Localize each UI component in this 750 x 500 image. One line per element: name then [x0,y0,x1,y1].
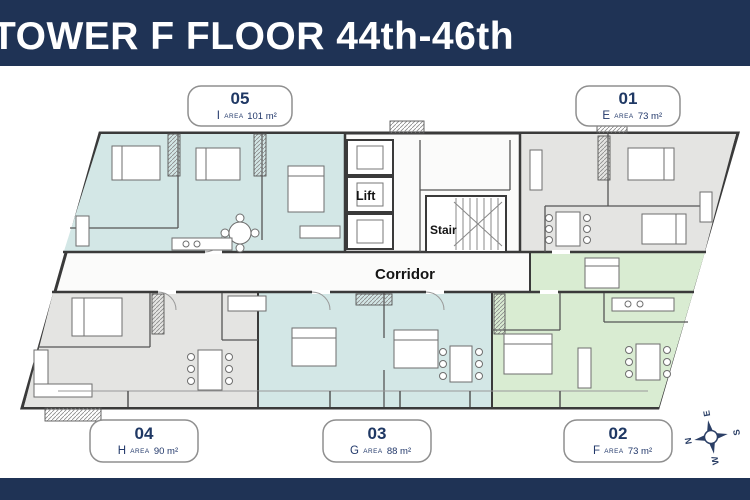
sofa [578,348,591,388]
footer-bar [0,478,750,500]
floor-plan-svg: TOWER F FLOOR 44th-46th [0,0,750,500]
unit-letter: I [217,110,220,122]
compass-rose: N E S W [679,405,747,470]
dining-table [556,212,580,246]
unit-badge-02: 02 F AREA 73 m² [564,420,672,462]
area-label: AREA [614,113,634,120]
page-title: TOWER F FLOOR 44th-46th [0,15,514,58]
sofa [530,150,542,190]
dining-table [450,346,472,382]
lift-core: Lift [347,140,393,249]
area-value: 73 m² [638,111,662,122]
compass-letter-e: E [701,410,712,418]
lift-shaft-1 [347,140,393,175]
lift-label: Lift [356,189,376,203]
area-label: AREA [130,448,150,455]
area-value: 73 m² [628,446,652,457]
area-value: 90 m² [154,446,178,457]
unit-badge-01: 01 E AREA 73 m² [576,86,680,126]
sofa [300,226,340,238]
unit-badge-03: 03 G AREA 88 m² [323,420,431,462]
floor-plan-page: TOWER F FLOOR 44th-46th [0,0,750,500]
corridor-label: Corridor [375,266,435,283]
unit-letter: E [602,110,610,122]
unit-badge-04: 04 H AREA 90 m² [90,420,198,462]
compass-letter-n: N [683,437,694,445]
dining-table [198,350,222,390]
area-label: AREA [224,113,244,120]
area-label: AREA [363,448,383,455]
unit-number: 02 [609,424,628,443]
kitchen-counter [172,238,232,250]
unit-number: 05 [231,89,250,108]
area-label: AREA [604,448,624,455]
dining-table [636,344,660,380]
unit-badge-05: 05 I AREA 101 m² [188,86,292,126]
building-plan: Lift Stair Corridor [22,121,738,421]
compass-letter-w: W [709,455,720,466]
unit-letter: F [593,445,600,457]
unit-letter: H [118,445,126,457]
stair-well: Stair [426,196,506,252]
unit-number: 04 [135,424,154,443]
unit-number: 03 [368,424,387,443]
compass-letter-s: S [731,429,742,437]
sofa [34,384,92,397]
area-value: 101 m² [247,111,277,122]
lift-shaft-3 [347,214,393,249]
unit-number: 01 [619,89,638,108]
stair-label: Stair [430,223,457,237]
bathtub [700,192,712,222]
bathtub [76,216,89,246]
area-value: 88 m² [387,446,411,457]
bathtub [228,296,266,311]
unit-letter: G [350,445,359,457]
